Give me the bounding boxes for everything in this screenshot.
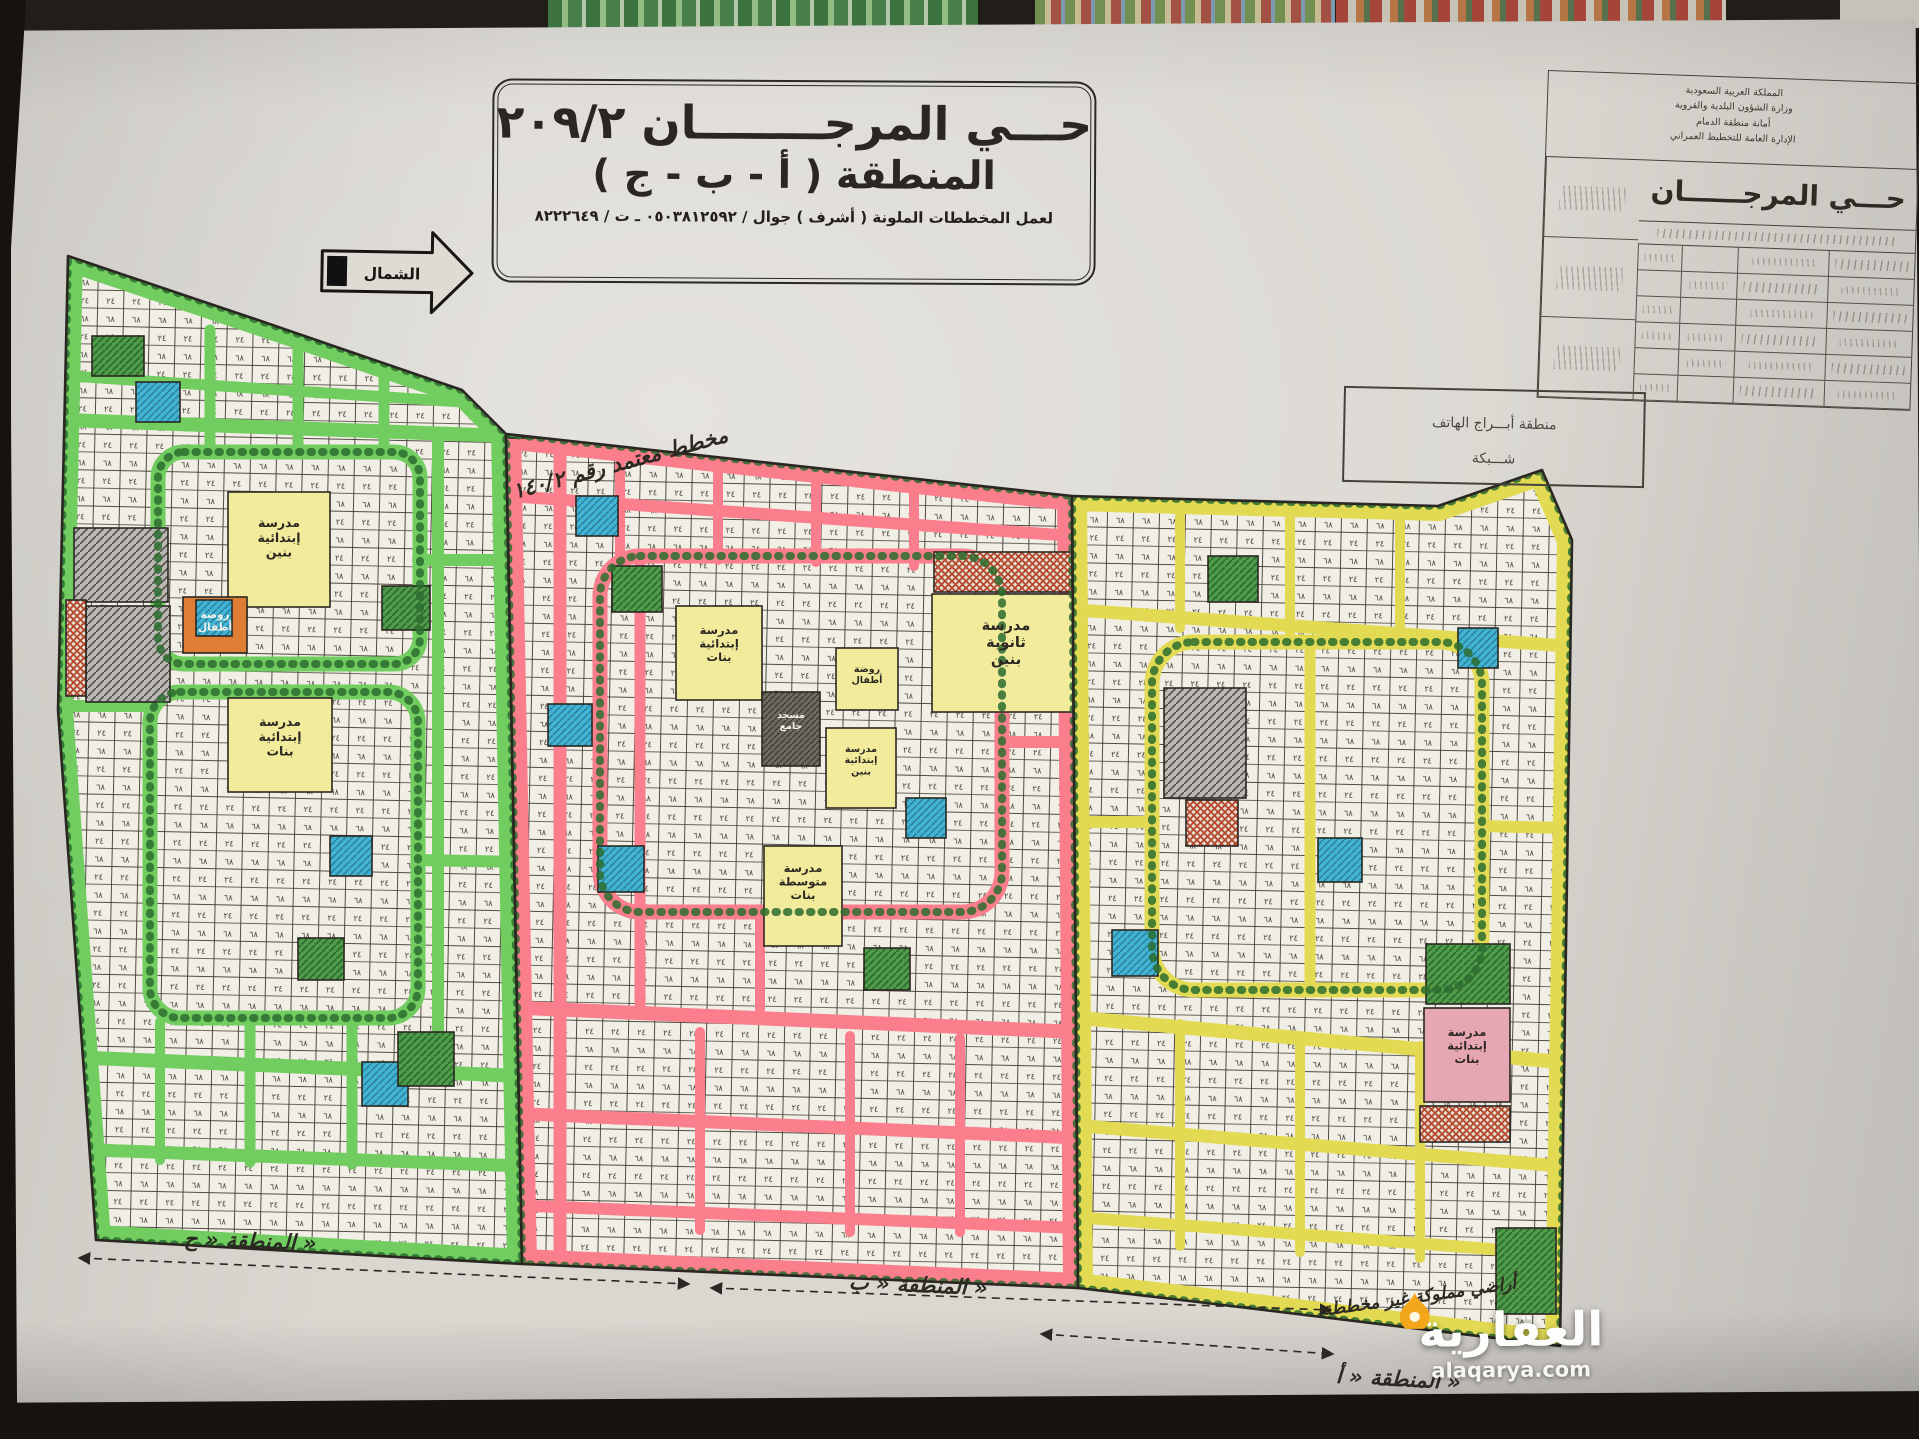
utility-block (86, 606, 170, 702)
kindergarten-label: روضةأطفال (198, 609, 232, 633)
north-arrow-tail (327, 256, 348, 286)
kindergarten-label: روضةأطفال (852, 664, 883, 686)
park (1208, 556, 1258, 602)
park (504, 398, 548, 438)
plan-title: حـــي المرجــــــــان ٢٠٩/٢ (494, 96, 1094, 150)
utility-block (1164, 688, 1246, 798)
handwriting-scribble (1541, 237, 1638, 320)
park (864, 948, 910, 990)
zone-b-pink (504, 398, 1080, 1288)
stamp-side-column (1538, 157, 1641, 400)
park (398, 1032, 454, 1086)
mosque (1318, 838, 1362, 882)
zone-b-label: المنطقة « ب » (848, 1270, 988, 1300)
extent-line-zone-a (1042, 1334, 1332, 1354)
park (1496, 1228, 1556, 1314)
photo-corner-shadow (0, 0, 26, 430)
services-strip (66, 600, 86, 696)
services-strip (934, 552, 1080, 592)
stamp-grid (1633, 243, 1915, 410)
park (1426, 944, 1510, 1004)
services-strip (1420, 1106, 1510, 1142)
authority-header: المملكة العربية السعودية وزارة الشؤون ال… (1546, 71, 1919, 169)
handwriting-scribble (1539, 317, 1636, 400)
approval-stamp-table: المملكة العربية السعودية وزارة الشؤون ال… (1537, 70, 1919, 411)
plan-subtitle: المنطقة ( أ - ب - ج ) (494, 151, 1094, 199)
park (612, 566, 662, 612)
mosque-label: مسجدجامع (777, 710, 805, 732)
mosque (136, 382, 180, 422)
phone-towers-box: منطقة أبـــراج الهاتف شـــبكة (1343, 387, 1645, 487)
mosque (576, 496, 618, 536)
plan-contact-note: لعمل المخططات الملونة ( أشرف ) جوال / ٠٥… (494, 206, 1094, 227)
photo-background: ٢٤ ٦٨ (0, 0, 1919, 1439)
title-box: حـــي المرجــــــــان ٢٠٩/٢ المنطقة ( أ … (491, 78, 1096, 285)
phone-towers-label: منطقة أبـــراج الهاتف (1432, 413, 1557, 434)
services-block (1186, 800, 1238, 846)
phone-towers-sublabel: شـــبكة (1472, 451, 1516, 468)
handwriting-scribble (1544, 157, 1641, 240)
zone-c-label: المنطقة « ج » (184, 1227, 317, 1257)
flame-icon (1400, 1293, 1430, 1329)
district-name-calligraphy: حـــي المرجــــــان (1639, 160, 1918, 230)
north-label: الشمال (364, 264, 421, 283)
park (298, 938, 344, 980)
utility-block (74, 528, 168, 602)
watermark: العقارية alaqarya.com (1380, 1305, 1643, 1384)
park (92, 336, 144, 376)
watermark-url: alaqarya.com (1380, 1357, 1642, 1383)
zone-a-yellow (1072, 470, 1572, 1346)
zone-c-green (58, 256, 522, 1264)
mosque (330, 836, 372, 876)
mosque (548, 704, 592, 746)
north-arrow: الشمال (321, 231, 472, 314)
mosque (906, 798, 946, 838)
